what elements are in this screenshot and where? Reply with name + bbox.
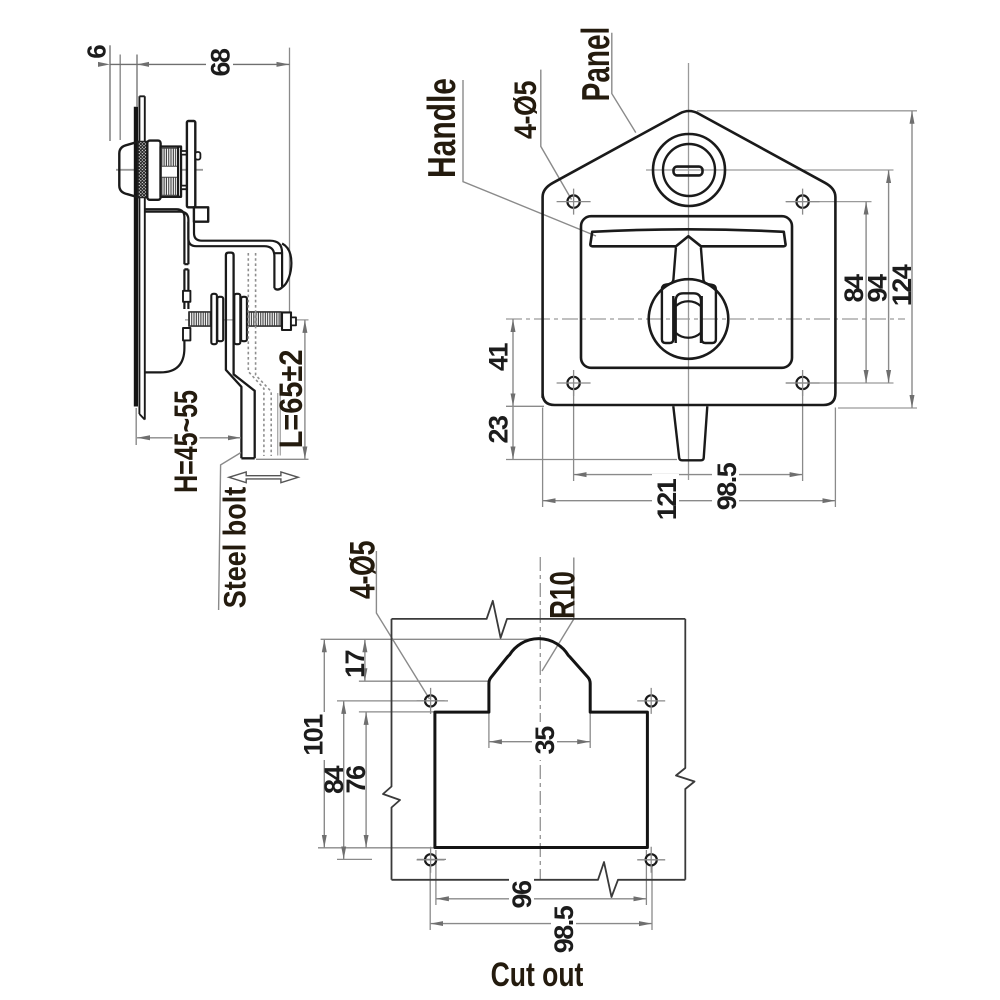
svg-text:H=45~55: H=45~55 [169,390,205,493]
svg-text:35: 35 [530,726,560,755]
svg-text:6: 6 [82,45,112,59]
svg-text:76: 76 [341,765,371,794]
svg-text:Steel bolt: Steel bolt [219,486,253,608]
svg-text:96: 96 [507,880,537,909]
svg-text:41: 41 [484,343,514,372]
svg-text:101: 101 [299,714,329,756]
svg-text:4-Ø5: 4-Ø5 [508,81,544,139]
svg-text:L=65±2: L=65±2 [272,350,309,449]
svg-text:98.5: 98.5 [712,462,742,510]
svg-text:23: 23 [484,415,514,444]
svg-text:121: 121 [652,478,682,520]
svg-text:124: 124 [887,264,917,306]
svg-text:4-Ø5: 4-Ø5 [343,541,382,599]
svg-text:17: 17 [340,651,370,679]
svg-text:Panel: Panel [574,27,618,102]
svg-text:98.5: 98.5 [549,905,579,953]
svg-text:68: 68 [206,48,236,77]
svg-text:Handle: Handle [421,78,464,178]
svg-text:R10: R10 [543,571,583,619]
svg-text:Cut out: Cut out [491,956,584,994]
